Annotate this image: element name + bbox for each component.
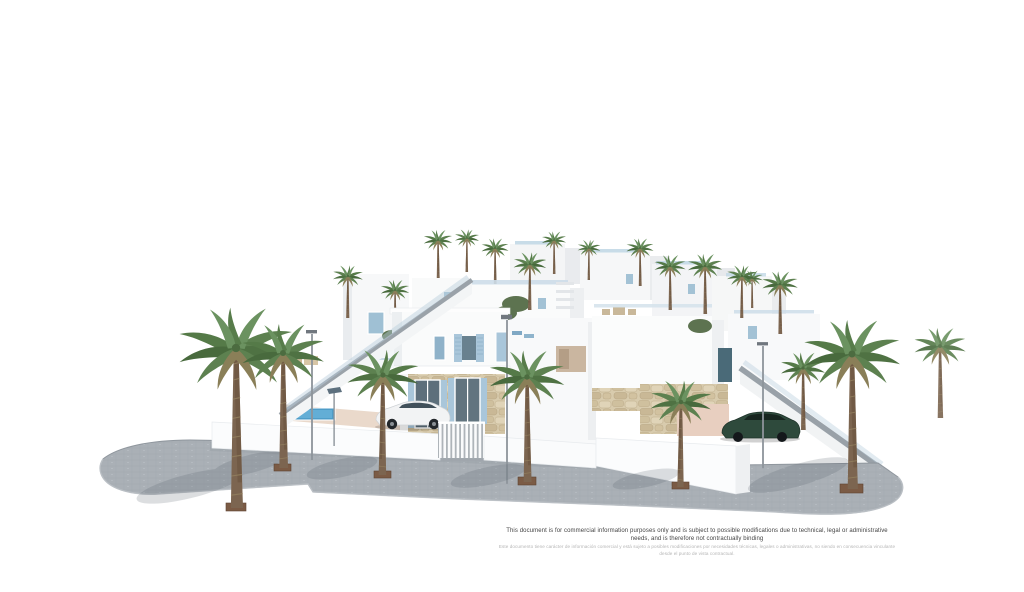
window-shutter xyxy=(434,336,445,360)
render-image xyxy=(40,16,1024,592)
architectural-render xyxy=(40,16,984,560)
slat-fence xyxy=(438,422,485,459)
window-with-shutters xyxy=(454,334,484,362)
patio-door xyxy=(448,378,487,424)
